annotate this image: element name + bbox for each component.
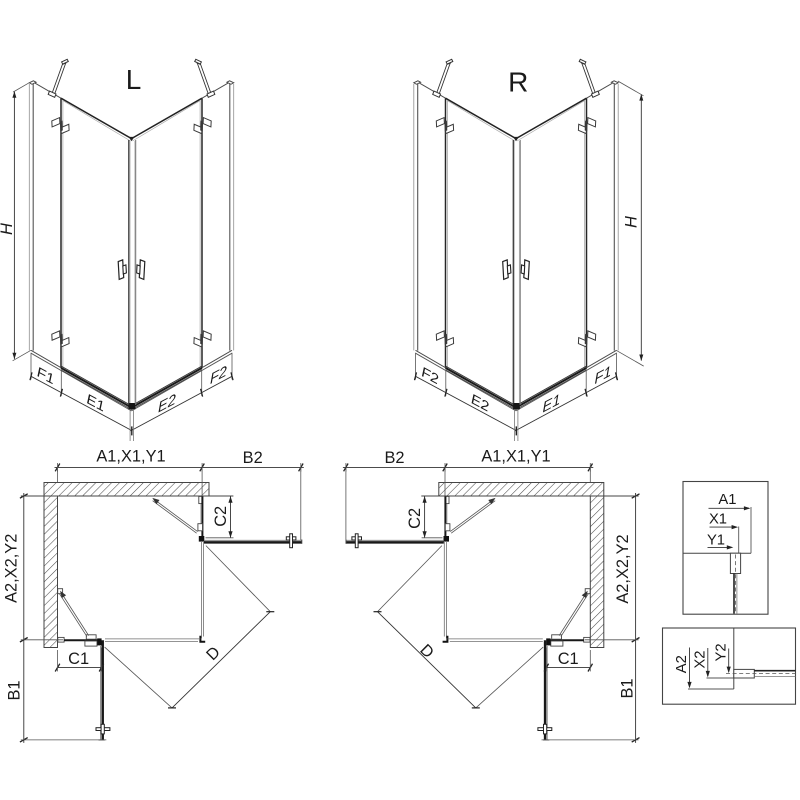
svg-text:A1: A1 [718,492,736,508]
svg-text:B1: B1 [619,678,637,698]
svg-text:B2: B2 [243,449,263,467]
svg-text:B1: B1 [6,680,24,700]
svg-text:Y1: Y1 [707,533,725,549]
svg-text:Y2: Y2 [713,643,729,661]
svg-text:C2: C2 [212,506,230,527]
svg-text:A2,X2,Y2: A2,X2,Y2 [3,534,21,603]
svg-text:X1: X1 [709,511,727,527]
svg-text:A1,X1,Y1: A1,X1,Y1 [96,448,165,466]
svg-text:C1: C1 [558,650,579,668]
svg-text:C1: C1 [68,650,89,668]
svg-text:B2: B2 [384,449,404,467]
svg-text:H: H [0,223,16,235]
svg-text:H: H [623,216,641,228]
svg-text:A2: A2 [674,655,690,673]
svg-text:X2: X2 [693,651,709,669]
svg-text:A2,X2,Y2: A2,X2,Y2 [614,534,632,603]
svg-text:C2: C2 [406,508,424,529]
svg-text:R: R [508,67,528,98]
svg-text:A1,X1,Y1: A1,X1,Y1 [481,448,550,466]
svg-text:L: L [126,64,142,95]
